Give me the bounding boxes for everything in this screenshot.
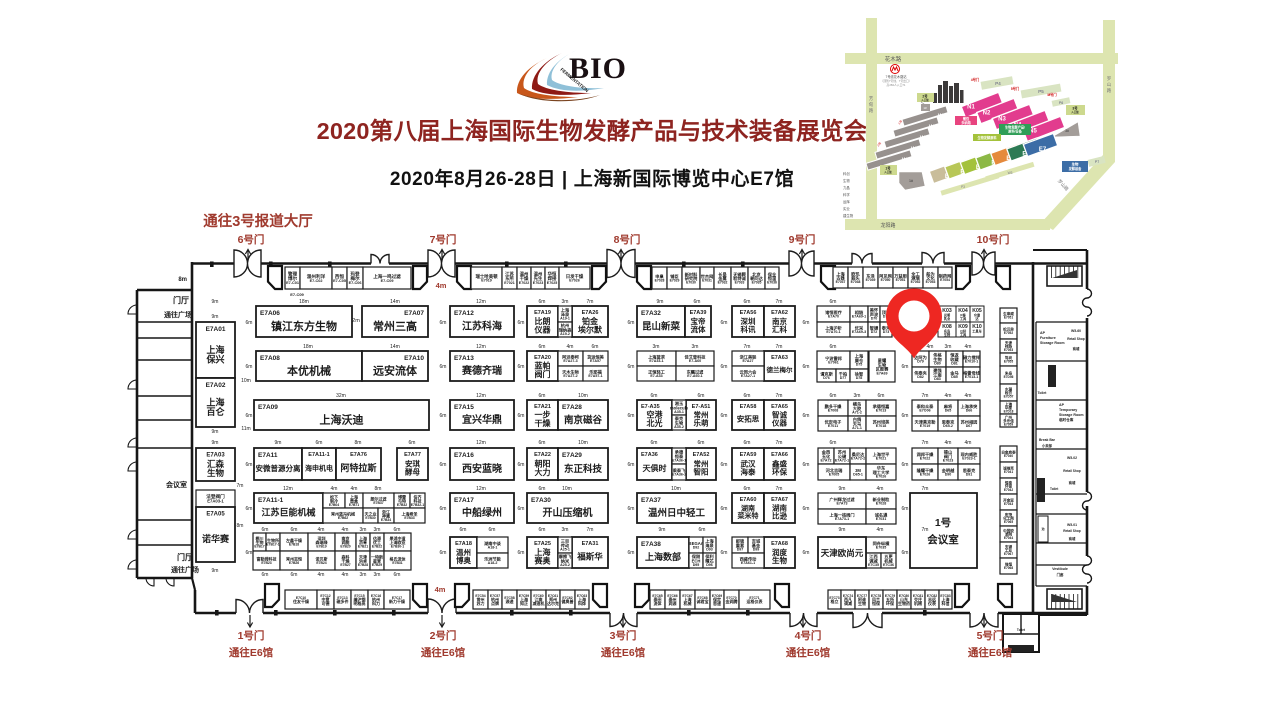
svg-text:14m: 14m xyxy=(390,344,400,350)
svg-text:干燥: 干燥 xyxy=(535,418,552,428)
svg-text:D70: D70 xyxy=(871,317,878,321)
svg-text:P7: P7 xyxy=(1095,160,1099,164)
svg-text:E7026: E7026 xyxy=(920,473,930,477)
svg-text:E7-C09: E7-C09 xyxy=(290,292,304,297)
svg-text:E7B23: E7B23 xyxy=(261,561,271,565)
svg-text:德兰梅尔: 德兰梅尔 xyxy=(767,365,794,374)
svg-text:6m: 6m xyxy=(628,506,635,512)
svg-text:E7O06: E7O06 xyxy=(919,409,930,413)
svg-text:E7-C05: E7-C05 xyxy=(333,279,346,283)
svg-text:E7A62: E7A62 xyxy=(771,310,788,316)
svg-text:可德: 可德 xyxy=(322,600,330,606)
svg-text:E7023: E7023 xyxy=(943,459,953,463)
svg-text:E7A56: E7A56 xyxy=(740,310,757,316)
svg-text:花木路: 花木路 xyxy=(885,55,902,63)
svg-text:汇科: 汇科 xyxy=(772,324,787,334)
svg-text:E7-C06: E7-C06 xyxy=(349,281,362,285)
svg-text:E7013: E7013 xyxy=(876,409,886,413)
svg-text:4m: 4m xyxy=(351,486,358,492)
svg-text:6m: 6m xyxy=(518,506,525,512)
svg-text:6m: 6m xyxy=(539,344,546,350)
svg-text:6m: 6m xyxy=(721,462,728,468)
svg-text:A35-2: A35-2 xyxy=(674,425,684,429)
svg-text:山: 山 xyxy=(1107,81,1112,88)
svg-text:6m: 6m xyxy=(628,550,635,556)
svg-text:工具: 工具 xyxy=(960,316,967,321)
svg-text:5号门: 5号门 xyxy=(1011,86,1019,91)
svg-text:明格高: 明格高 xyxy=(354,600,366,606)
svg-text:E7A03-1: E7A03-1 xyxy=(207,499,224,504)
svg-text:W3: W3 xyxy=(1008,171,1013,175)
svg-text:3号: 3号 xyxy=(1072,106,1078,111)
svg-text:E7A30: E7A30 xyxy=(531,497,551,504)
svg-text:P4: P4 xyxy=(995,81,1001,86)
svg-text:E7B30: E7B30 xyxy=(365,516,375,520)
svg-text:E7B32: E7B32 xyxy=(397,503,407,507)
svg-text:6m: 6m xyxy=(262,572,269,578)
svg-text:7m: 7m xyxy=(776,486,783,492)
svg-text:E7A13: E7A13 xyxy=(454,355,474,362)
svg-text:西安蓝晓: 西安蓝晓 xyxy=(462,462,502,475)
svg-text:路: 路 xyxy=(869,107,874,114)
svg-text:Break Bar: Break Bar xyxy=(1039,438,1056,442)
svg-text:仪器: 仪器 xyxy=(771,419,787,428)
svg-text:E7029: E7029 xyxy=(670,279,680,283)
svg-text:E7A03: E7A03 xyxy=(206,453,225,459)
svg-text:E7-C09: E7-C09 xyxy=(381,279,394,283)
svg-text:9号门: 9号门 xyxy=(789,233,816,246)
svg-text:多纳路: 多纳路 xyxy=(961,120,971,125)
svg-text:E7A02: E7A02 xyxy=(206,382,226,389)
svg-text:7m: 7m xyxy=(776,299,783,305)
svg-text:E7A67: E7A67 xyxy=(771,497,788,503)
svg-text:18m: 18m xyxy=(303,344,313,350)
svg-text:E7A25: E7A25 xyxy=(534,541,551,547)
svg-text:2020年8月26-28日 | 上海新国际博览中心E7馆: 2020年8月26-28日 | 上海新国际博览中心E7馆 xyxy=(390,167,794,190)
svg-text:E7050: E7050 xyxy=(881,278,891,282)
svg-text:安微普源分离: 安微普源分离 xyxy=(256,463,301,473)
svg-text:生物: 生物 xyxy=(207,468,225,478)
svg-text:6m: 6m xyxy=(803,462,810,468)
svg-text:11m: 11m xyxy=(241,426,250,432)
svg-text:E7B19: E7B19 xyxy=(316,544,326,548)
svg-text:温州日中轻工: 温州日中轻工 xyxy=(648,507,706,519)
svg-text:3m: 3m xyxy=(945,344,952,350)
svg-text:A19-2: A19-2 xyxy=(560,332,570,336)
svg-text:6m: 6m xyxy=(518,550,525,556)
svg-text:9m: 9m xyxy=(839,486,846,492)
svg-text:E7A69-1: E7A69-1 xyxy=(852,315,866,319)
svg-text:入口处: 入口处 xyxy=(883,170,892,174)
svg-text:E7026: E7026 xyxy=(876,475,886,479)
svg-text:E7021: E7021 xyxy=(504,281,514,285)
svg-text:4m: 4m xyxy=(965,440,972,446)
svg-text:门厅: 门厅 xyxy=(177,552,193,562)
svg-text:10m: 10m xyxy=(562,486,572,492)
svg-text:科学: 科学 xyxy=(843,192,850,197)
svg-text:2号: 2号 xyxy=(922,94,928,99)
svg-text:D76: D76 xyxy=(823,376,830,380)
svg-text:3m: 3m xyxy=(374,527,381,533)
svg-text:E7026: E7026 xyxy=(569,279,579,283)
svg-text:9m: 9m xyxy=(659,527,666,533)
svg-text:E7A68: E7A68 xyxy=(771,541,788,547)
svg-text:P6: P6 xyxy=(1059,101,1063,105)
svg-text:M号门: M号门 xyxy=(1047,92,1056,97)
svg-text:E7A27-3: E7A27-3 xyxy=(563,359,577,363)
svg-text:W1: W1 xyxy=(938,114,946,120)
svg-text:2020第八届上海国际生物发酵产品与技术装备展览会: 2020第八届上海国际生物发酵产品与技术装备展览会 xyxy=(317,117,868,144)
svg-text:6m: 6m xyxy=(698,393,705,399)
svg-text:4m: 4m xyxy=(435,585,446,594)
svg-text:12m: 12m xyxy=(476,344,486,350)
svg-text:7m: 7m xyxy=(776,393,783,399)
svg-text:8m: 8m xyxy=(375,486,382,492)
svg-text:本优机械: 本优机械 xyxy=(287,363,331,377)
svg-text:生物: 生物 xyxy=(843,178,850,183)
svg-text:3号门: 3号门 xyxy=(610,629,637,642)
svg-text:E7A17: E7A17 xyxy=(454,497,474,504)
svg-text:D81: D81 xyxy=(951,362,958,366)
svg-text:N2: N2 xyxy=(983,111,991,117)
svg-text:力晶: 力晶 xyxy=(843,185,850,190)
svg-text:E7C35: E7C35 xyxy=(868,563,879,567)
svg-text:E7B18: E7B18 xyxy=(289,542,299,546)
svg-text:D85: D85 xyxy=(951,375,958,379)
svg-text:D72: D72 xyxy=(871,330,878,334)
svg-text:Temporary: Temporary xyxy=(1059,408,1077,412)
svg-text:6m: 6m xyxy=(651,440,658,446)
svg-text:6m: 6m xyxy=(902,506,909,512)
svg-text:北光: 北光 xyxy=(647,418,663,428)
svg-text:上海数部: 上海数部 xyxy=(645,551,681,562)
svg-text:E7B30-1: E7B30-1 xyxy=(391,544,404,548)
svg-text:12m: 12m xyxy=(476,393,486,399)
svg-text:E7A36-2: E7A36-2 xyxy=(672,473,686,477)
svg-text:6m: 6m xyxy=(628,364,635,370)
svg-text:E7011: E7011 xyxy=(828,424,838,428)
svg-text:E7013-1: E7013-1 xyxy=(965,375,979,379)
svg-text:W5-01: W5-01 xyxy=(1067,523,1077,527)
svg-text:3m: 3m xyxy=(692,344,699,350)
svg-text:江苏巨能机械: 江苏巨能机械 xyxy=(261,507,315,518)
svg-text:18m: 18m xyxy=(299,299,309,305)
svg-text:E7B22: E7B22 xyxy=(372,544,382,548)
svg-text:E7005: E7005 xyxy=(829,473,839,477)
svg-text:E7A37: E7A37 xyxy=(641,497,661,504)
svg-text:芳: 芳 xyxy=(869,95,874,102)
svg-text:12m: 12m xyxy=(476,440,486,446)
svg-text:E7A21: E7A21 xyxy=(534,404,551,410)
svg-text:E7A63: E7A63 xyxy=(771,355,788,361)
svg-text:住友干燥: 住友干燥 xyxy=(293,598,310,604)
svg-text:通往E6馆: 通往E6馆 xyxy=(229,646,274,659)
svg-text:E7: E7 xyxy=(1039,147,1047,153)
svg-text:E7028: E7028 xyxy=(876,502,886,506)
svg-text:E7B21: E7B21 xyxy=(358,544,368,548)
svg-text:入口处: 入口处 xyxy=(920,98,929,102)
svg-text:Vestibule: Vestibule xyxy=(1052,567,1068,571)
svg-text:4m: 4m xyxy=(965,344,972,350)
svg-text:Toilet: Toilet xyxy=(1017,628,1026,632)
svg-text:E7A11-1: E7A11-1 xyxy=(258,497,284,504)
svg-text:1#: 1# xyxy=(923,106,927,110)
svg-text:6m: 6m xyxy=(394,527,401,533)
svg-text:10m: 10m xyxy=(671,486,681,492)
svg-text:6m: 6m xyxy=(539,440,546,446)
svg-text:E7B33: E7B33 xyxy=(404,516,414,520)
svg-text:6m: 6m xyxy=(518,320,525,326)
svg-text:仪器: 仪器 xyxy=(534,325,552,334)
svg-text:4m: 4m xyxy=(567,344,574,350)
svg-text:恒保: 恒保 xyxy=(872,600,881,606)
svg-text:W5: W5 xyxy=(902,158,910,164)
svg-text:E7A72-2: E7A72-2 xyxy=(851,457,865,461)
svg-text:E7043: E7043 xyxy=(1004,502,1013,506)
svg-text:E7A28: E7A28 xyxy=(562,404,582,411)
svg-text:博奥: 博奥 xyxy=(456,555,471,565)
svg-text:建生物: 建生物 xyxy=(843,213,854,218)
svg-text:百仑: 百仑 xyxy=(206,406,225,417)
svg-text:W4: W4 xyxy=(911,147,920,153)
svg-text:P3: P3 xyxy=(961,185,965,189)
svg-text:E7A29: E7A29 xyxy=(562,452,582,459)
svg-text:D80: D80 xyxy=(934,362,941,366)
svg-text:E7-C01: E7-C01 xyxy=(286,281,299,285)
svg-text:E7067: E7067 xyxy=(1004,552,1013,556)
svg-text:流体: 流体 xyxy=(654,600,663,606)
svg-text:D75: D75 xyxy=(856,363,863,367)
svg-text:E7A27-2: E7A27-2 xyxy=(563,374,577,378)
svg-text:6m: 6m xyxy=(830,393,837,399)
svg-text:E7059: E7059 xyxy=(1004,422,1013,426)
svg-text:6m: 6m xyxy=(518,462,525,468)
svg-text:E7051: E7051 xyxy=(1004,316,1013,320)
svg-text:通往E6馆: 通往E6馆 xyxy=(786,646,831,659)
svg-text:D99: D99 xyxy=(753,548,760,552)
svg-text:E7-A51: E7-A51 xyxy=(692,404,711,410)
svg-text:6m: 6m xyxy=(394,572,401,578)
svg-text:7m: 7m xyxy=(922,486,929,492)
svg-text:高284人入口71: 高284人入口71 xyxy=(887,83,906,87)
svg-text:E7044: E7044 xyxy=(1004,536,1013,540)
svg-text:E7A27-1: E7A27-1 xyxy=(741,374,755,378)
svg-text:P5: P5 xyxy=(1038,89,1044,94)
svg-text:Toilet: Toilet xyxy=(1050,487,1059,491)
svg-text:D73: D73 xyxy=(883,330,890,334)
svg-text:D95: D95 xyxy=(693,563,700,567)
svg-text:E7A77: E7A77 xyxy=(404,452,421,458)
svg-text:6m: 6m xyxy=(744,299,751,305)
svg-text:AP: AP xyxy=(1059,403,1065,407)
svg-text:14m: 14m xyxy=(390,299,400,305)
svg-text:通往广场: 通往广场 xyxy=(164,310,192,319)
svg-text:E7042: E7042 xyxy=(1004,488,1013,492)
svg-text:龙阳路: 龙阳路 xyxy=(880,222,895,229)
svg-text:E7037: E7037 xyxy=(836,280,846,284)
svg-text:6m: 6m xyxy=(698,440,705,446)
svg-text:6m: 6m xyxy=(721,550,728,556)
svg-text:9m: 9m xyxy=(212,568,219,574)
svg-text:通往广场: 通往广场 xyxy=(171,565,199,574)
svg-text:4m: 4m xyxy=(436,281,447,290)
svg-text:6m: 6m xyxy=(440,506,447,512)
svg-text:E7035: E7035 xyxy=(876,546,886,550)
svg-text:32m: 32m xyxy=(336,393,346,399)
svg-text:常州三高: 常州三高 xyxy=(373,319,417,333)
svg-text:天俱时: 天俱时 xyxy=(643,463,667,473)
svg-text:E7A72-1: E7A72-1 xyxy=(835,459,849,463)
svg-text:6m: 6m xyxy=(628,462,635,468)
svg-text:E7B27: E7B27 xyxy=(340,563,350,567)
svg-text:3m: 3m xyxy=(360,527,367,533)
svg-text:通往E6馆: 通往E6馆 xyxy=(601,646,646,659)
svg-text:N1: N1 xyxy=(967,105,975,111)
svg-text:D67: D67 xyxy=(966,424,973,428)
svg-text:E7-A33: E7-A33 xyxy=(650,374,662,378)
svg-text:7m: 7m xyxy=(776,440,783,446)
svg-text:E7039: E7039 xyxy=(866,278,876,282)
svg-text:6m: 6m xyxy=(592,344,599,350)
svg-text:7m: 7m xyxy=(922,527,929,533)
svg-text:6m: 6m xyxy=(291,572,298,578)
svg-text:会议室: 会议室 xyxy=(166,480,187,489)
svg-text:小卖部: 小卖部 xyxy=(1041,443,1053,448)
svg-text:4m: 4m xyxy=(927,344,934,350)
svg-text:N3: N3 xyxy=(998,117,1006,123)
svg-text:E7A11: E7A11 xyxy=(258,452,278,459)
svg-text:E7A36: E7A36 xyxy=(641,452,658,458)
svg-text:D96: D96 xyxy=(706,563,713,567)
svg-text:6m: 6m xyxy=(694,299,701,305)
svg-text:E7A73-1: E7A73-1 xyxy=(835,517,849,521)
svg-text:开山压缩机: 开山压缩机 xyxy=(543,506,593,519)
svg-text:6m: 6m xyxy=(409,440,416,446)
svg-text:临时仓库: 临时仓库 xyxy=(1059,417,1074,422)
svg-text:A35-1: A35-1 xyxy=(674,410,684,414)
svg-text:路: 路 xyxy=(1107,87,1112,94)
svg-text:4m: 4m xyxy=(877,527,884,533)
svg-text:E7023-1: E7023-1 xyxy=(962,457,976,461)
svg-text:E7055: E7055 xyxy=(1004,360,1013,364)
svg-text:通往3号报道大厅: 通往3号报道大厅 xyxy=(203,212,313,230)
svg-text:E7B17-1: E7B17-1 xyxy=(266,542,279,546)
svg-text:E7052: E7052 xyxy=(1004,331,1013,335)
svg-text:E7A52: E7A52 xyxy=(693,452,710,458)
svg-text:东正科技: 东正科技 xyxy=(564,463,603,475)
svg-text:6m: 6m xyxy=(246,550,253,556)
svg-text:7m: 7m xyxy=(237,483,244,489)
svg-text:7m: 7m xyxy=(744,344,751,350)
svg-text:E7041: E7041 xyxy=(1004,470,1013,474)
svg-text:工具: 工具 xyxy=(960,332,967,337)
svg-text:E7054: E7054 xyxy=(940,278,950,282)
svg-text:E7B20: E7B20 xyxy=(340,544,350,548)
svg-text:E7A36-1: E7A36-1 xyxy=(672,459,686,463)
svg-text:源递: 源递 xyxy=(506,598,514,604)
svg-text:上海沃迪: 上海沃迪 xyxy=(320,412,364,426)
svg-text:调减: 调减 xyxy=(844,600,852,606)
svg-text:甸: 甸 xyxy=(869,101,874,108)
svg-text:科力: 科力 xyxy=(372,600,380,606)
svg-text:E7A66: E7A66 xyxy=(771,452,788,458)
svg-text:6m: 6m xyxy=(721,506,728,512)
svg-text:E7A72: E7A72 xyxy=(821,459,832,463)
svg-text:E7A07: E7A07 xyxy=(404,310,424,317)
svg-text:仪表: 仪表 xyxy=(927,600,936,606)
svg-text:6m: 6m xyxy=(518,413,525,419)
svg-text:乐萌: 乐萌 xyxy=(694,418,709,428)
svg-text:机械: 机械 xyxy=(684,600,692,606)
svg-text:8m: 8m xyxy=(178,277,187,283)
svg-text:酵母: 酵母 xyxy=(405,467,420,477)
svg-text:12m: 12m xyxy=(476,486,486,492)
svg-text:罗山路: 罗山路 xyxy=(1056,178,1071,193)
svg-text:运辉: 运辉 xyxy=(843,199,850,204)
svg-text:商城: 商城 xyxy=(1073,346,1080,351)
svg-text:4m: 4m xyxy=(945,393,952,399)
svg-text:E7A65: E7A65 xyxy=(771,404,788,410)
svg-text:赛奥: 赛奥 xyxy=(534,555,552,565)
svg-text:6m: 6m xyxy=(803,550,810,556)
svg-text:E7025: E7025 xyxy=(547,281,557,285)
svg-text:Retail Shop: Retail Shop xyxy=(1063,469,1081,473)
svg-text:安拓思: 安拓思 xyxy=(737,414,760,424)
svg-text:E7040: E7040 xyxy=(1004,454,1013,458)
svg-text:科讯: 科讯 xyxy=(741,324,756,334)
svg-text:E7A60: E7A60 xyxy=(740,497,757,503)
svg-text:4m: 4m xyxy=(342,572,349,578)
svg-text:9m: 9m xyxy=(839,527,846,533)
svg-text:达尔克: 达尔克 xyxy=(547,600,559,606)
svg-text:6m: 6m xyxy=(721,320,728,326)
svg-text:E7A15: E7A15 xyxy=(454,404,474,411)
svg-text:6m: 6m xyxy=(246,320,253,326)
svg-text:D65: D65 xyxy=(945,409,952,413)
svg-text:6m: 6m xyxy=(246,506,253,512)
svg-text:6m: 6m xyxy=(744,440,751,446)
svg-text:D92: D92 xyxy=(693,546,700,550)
svg-text:E7A09: E7A09 xyxy=(258,404,278,411)
svg-text:E7B32-1: E7B32-1 xyxy=(411,503,424,507)
svg-text:中船绿州: 中船绿州 xyxy=(462,506,502,519)
svg-text:6m: 6m xyxy=(628,413,635,419)
svg-text:1#: 1# xyxy=(909,179,913,183)
svg-text:W3: W3 xyxy=(920,136,928,142)
svg-text:科烨: 科烨 xyxy=(578,600,586,606)
svg-text:3m: 3m xyxy=(360,572,367,578)
svg-text:E7053: E7053 xyxy=(926,280,936,284)
svg-text:6m: 6m xyxy=(830,440,837,446)
svg-text:10m: 10m xyxy=(241,378,251,384)
svg-text:6m: 6m xyxy=(803,320,810,326)
svg-text:6m: 6m xyxy=(902,364,909,370)
svg-text:新力干燥: 新力干燥 xyxy=(389,598,406,604)
svg-text:6m: 6m xyxy=(878,393,885,399)
svg-text:D65-1: D65-1 xyxy=(853,473,863,477)
svg-text:E7B17: E7B17 xyxy=(254,544,264,548)
svg-text:远安流体: 远安流体 xyxy=(373,363,418,377)
svg-text:3m: 3m xyxy=(374,572,381,578)
svg-text:减速机: 减速机 xyxy=(533,600,545,606)
svg-text:E7A32: E7A32 xyxy=(641,310,661,317)
svg-text:6m: 6m xyxy=(489,527,496,533)
svg-text:4m: 4m xyxy=(318,527,325,533)
svg-text:6m: 6m xyxy=(539,486,546,492)
svg-text:A71-2: A71-2 xyxy=(852,411,862,415)
svg-text:12m: 12m xyxy=(476,299,486,305)
svg-text:E7031: E7031 xyxy=(876,517,886,521)
